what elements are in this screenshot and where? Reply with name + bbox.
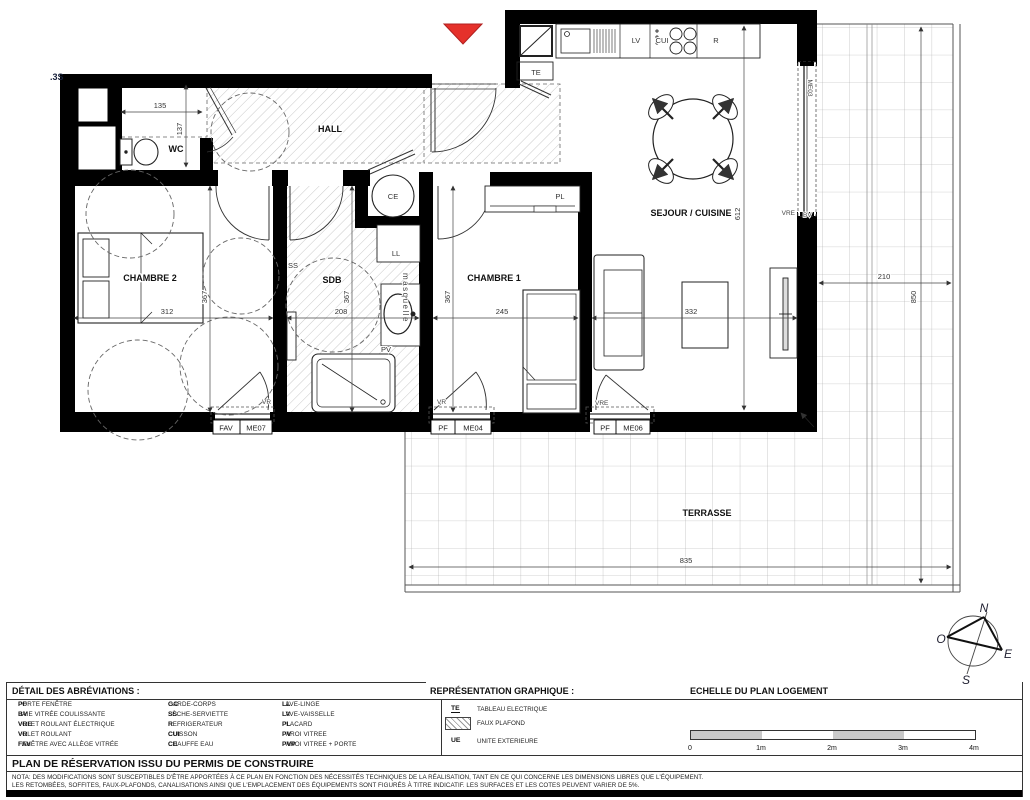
pillow	[83, 281, 109, 318]
nota-line-2: LES RETOMBÉES, SOFFITES, FAUX-PLAFONDS, …	[12, 782, 639, 789]
divider	[6, 771, 1022, 772]
te-symbol-label: TABLEAU ELECTRIQUE	[477, 706, 547, 713]
abbr-row: SSSÈCHE-SERVIETTE	[168, 711, 368, 721]
dim-terrasse-w: 835	[680, 556, 693, 565]
hall-label: HALL	[318, 124, 342, 134]
dim-chambre1-w: 245	[496, 307, 509, 316]
abbr-row: LVLAVE-VAISSELLE	[282, 711, 482, 721]
lv-label: LV	[632, 36, 641, 45]
chambre1-door	[438, 186, 491, 239]
compass-rose: N O E S	[936, 601, 1013, 687]
ue-symbol: UE	[451, 737, 460, 744]
wc-dashed-zone	[118, 84, 207, 137]
me07-shutter: VR	[262, 399, 271, 406]
tv-unit	[770, 268, 797, 358]
dim-sdb-w: 208	[335, 307, 348, 316]
svg-text:ME06: ME06	[623, 424, 643, 433]
dim-chambre1-d: 367	[443, 291, 452, 304]
scale-tick: 4m	[969, 745, 979, 752]
compass-east: E	[1004, 647, 1013, 661]
dim-wc-w: 135	[154, 101, 167, 110]
svg-text:ME04: ME04	[463, 424, 483, 433]
toilet-bowl	[134, 139, 158, 165]
abbr-row: RREFRIGERATEUR	[168, 721, 368, 731]
dining-set	[644, 90, 742, 188]
svg-text:PF: PF	[438, 424, 448, 433]
window-ref-me04: PF ME04	[431, 420, 491, 434]
abbr-row: PLPLACARD	[282, 721, 482, 731]
pv-label: PV	[381, 345, 391, 354]
me06-shutter: VRE	[595, 400, 609, 407]
terrace-grid-right	[817, 24, 953, 585]
me03-ref: ME03	[806, 80, 813, 97]
me04-shutter: VR	[437, 399, 446, 406]
wc-fixtures	[120, 139, 158, 165]
compass-north: N	[980, 601, 989, 615]
pillow	[83, 239, 109, 277]
dim-sdb-d: 367	[342, 291, 351, 304]
abbr-column-2: GCGARDE-CORPS SSSÈCHE-SERVIETTE RREFRIGE…	[168, 701, 368, 751]
kitchen-sink	[561, 29, 615, 53]
placard	[485, 186, 580, 212]
abbr-row: PFPORTE FENÊTRE	[18, 701, 218, 711]
floor-plan-page: TERRASSE	[0, 0, 1030, 800]
pl-label: PL	[555, 192, 564, 201]
abbr-column-3: LLLAVE-LINGE LVLAVE-VAISSELLE PLPLACARD …	[282, 701, 482, 751]
abbr-row: PVPPAROI VITREE + PORTE	[282, 741, 482, 751]
dim-terrasse-side-w: 210	[878, 272, 891, 281]
ce-label: CE	[388, 192, 398, 201]
shower	[312, 354, 395, 412]
dim-sejour-w: 332	[685, 307, 698, 316]
r-label: R	[713, 36, 719, 45]
abbr-row: VREVOLET ROULANT ÉLECTRIQUE	[18, 721, 218, 731]
wc-label: WC	[169, 144, 184, 154]
chambre1-furniture	[485, 186, 580, 413]
abbr-row: VRVOLET ROULANT	[18, 731, 218, 741]
divider	[6, 682, 7, 797]
chambre1-label: CHAMBRE 1	[467, 273, 521, 283]
entrance-arrow-icon	[444, 24, 482, 44]
svg-text:PF: PF	[600, 424, 610, 433]
bottom-bar	[6, 790, 1022, 797]
drainboard	[594, 29, 615, 53]
vasque-label: masquelle	[401, 273, 410, 323]
corner-ref: .3S	[50, 72, 64, 82]
hall-hatch	[207, 88, 424, 163]
terrasse-label: TERRASSE	[682, 508, 731, 518]
compass-south: S	[962, 673, 970, 687]
abbr-row: PVPAROI VITREE	[282, 731, 482, 741]
ue-symbol-label: UNITE EXTERIEURE	[477, 738, 538, 745]
divider	[441, 699, 442, 755]
te-label: TE	[531, 68, 541, 77]
nota-line-1: NOTA: DES MODIFICATIONS SONT SUSCEPTIBLE…	[12, 774, 703, 781]
abbr-row: BVBAIE VITRÉE COULISSANTE	[18, 711, 218, 721]
ss-label: SS	[288, 261, 298, 270]
terrace-grid-bottom	[405, 432, 817, 585]
me03-bv-label: BV	[803, 212, 812, 219]
abbr-row: FAVFENÊTRE AVEC ALLÈGE VITRÉE	[18, 741, 218, 751]
sejour-label: SEJOUR / CUISINE	[650, 208, 731, 218]
dim-chambre2-w: 312	[161, 307, 174, 316]
faux-plafond-label: FAUX PLAFOND	[477, 720, 525, 727]
ll-label: LL	[392, 249, 400, 258]
svg-text:FAV: FAV	[219, 424, 233, 433]
bay-window-me03: ME03 VRE BV	[782, 62, 816, 219]
scale-tick: 1m	[756, 745, 766, 752]
abbr-row: LLLAVE-LINGE	[282, 701, 482, 711]
abbr-column-1: PFPORTE FENÊTRE BVBAIE VITRÉE COULISSANT…	[18, 701, 218, 751]
sofa	[594, 255, 644, 370]
kitchen	[517, 24, 760, 80]
scale-tick: 0	[688, 745, 692, 752]
divider	[6, 699, 1022, 700]
scale-tick: 2m	[827, 745, 837, 752]
dim-chambre2-d: 367	[200, 291, 209, 304]
divider	[6, 755, 1022, 756]
chambre2-label: CHAMBRE 2	[123, 273, 177, 283]
svg-text:ME07: ME07	[246, 424, 266, 433]
abbr-row: GCGARDE-CORPS	[168, 701, 368, 711]
te-symbol: TE	[451, 705, 460, 713]
cui-label: CUI	[656, 36, 669, 45]
window-ref-me06: PF ME06	[594, 420, 650, 434]
window-ref-me07: FAV ME07	[213, 420, 272, 434]
dim-sejour-d: 612	[733, 208, 742, 221]
abbr-row: CECHAUFFE EAU	[168, 741, 368, 751]
me03-vre-label: VRE	[782, 210, 796, 217]
living-furniture	[594, 255, 814, 427]
abbr-row: CUICUISSON	[168, 731, 368, 741]
single-bed	[523, 290, 580, 413]
chambre2-door	[216, 186, 269, 240]
divider	[1022, 682, 1023, 797]
compass-west: O	[936, 632, 945, 646]
scale-bar	[690, 730, 976, 740]
reservation-title: PLAN DE RÉSERVATION ISSU DU PERMIS DE CO…	[12, 758, 314, 770]
faux-plafond-icon	[445, 717, 471, 730]
scale-tick: 3m	[898, 745, 908, 752]
dim-wc-d: 137	[175, 123, 184, 136]
vanity-sink	[381, 284, 420, 346]
dim-terrasse-side-d: 850	[909, 291, 918, 304]
floor-plan-drawing: TERRASSE	[0, 0, 1030, 690]
sdb-label: SDB	[322, 275, 342, 285]
